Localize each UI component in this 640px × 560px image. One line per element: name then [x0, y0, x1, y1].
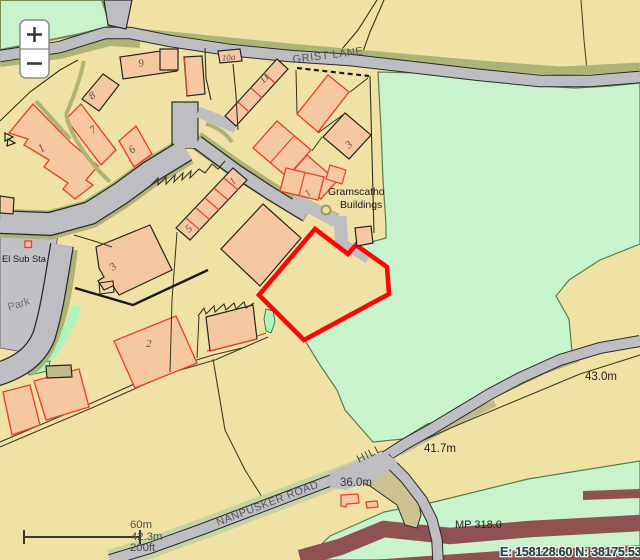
svg-text:43.0m: 43.0m	[585, 371, 617, 383]
svg-text:60m: 60m	[130, 519, 152, 531]
svg-text:MP 318.0: MP 318.0	[455, 519, 502, 531]
svg-text:200ft: 200ft	[130, 542, 156, 554]
svg-text:E: 158128.60 N: 38175.53: E: 158128.60 N: 38175.53	[500, 545, 640, 559]
svg-text:36.0m: 36.0m	[340, 477, 372, 489]
svg-text:41.7m: 41.7m	[424, 443, 456, 455]
svg-text:El Sub Sta: El Sub Sta	[2, 254, 47, 264]
svg-text:Buildings: Buildings	[340, 200, 382, 211]
svg-text:Gramscatho: Gramscatho	[328, 187, 385, 198]
svg-text:10a: 10a	[221, 52, 236, 63]
svg-text:2: 2	[146, 338, 152, 350]
